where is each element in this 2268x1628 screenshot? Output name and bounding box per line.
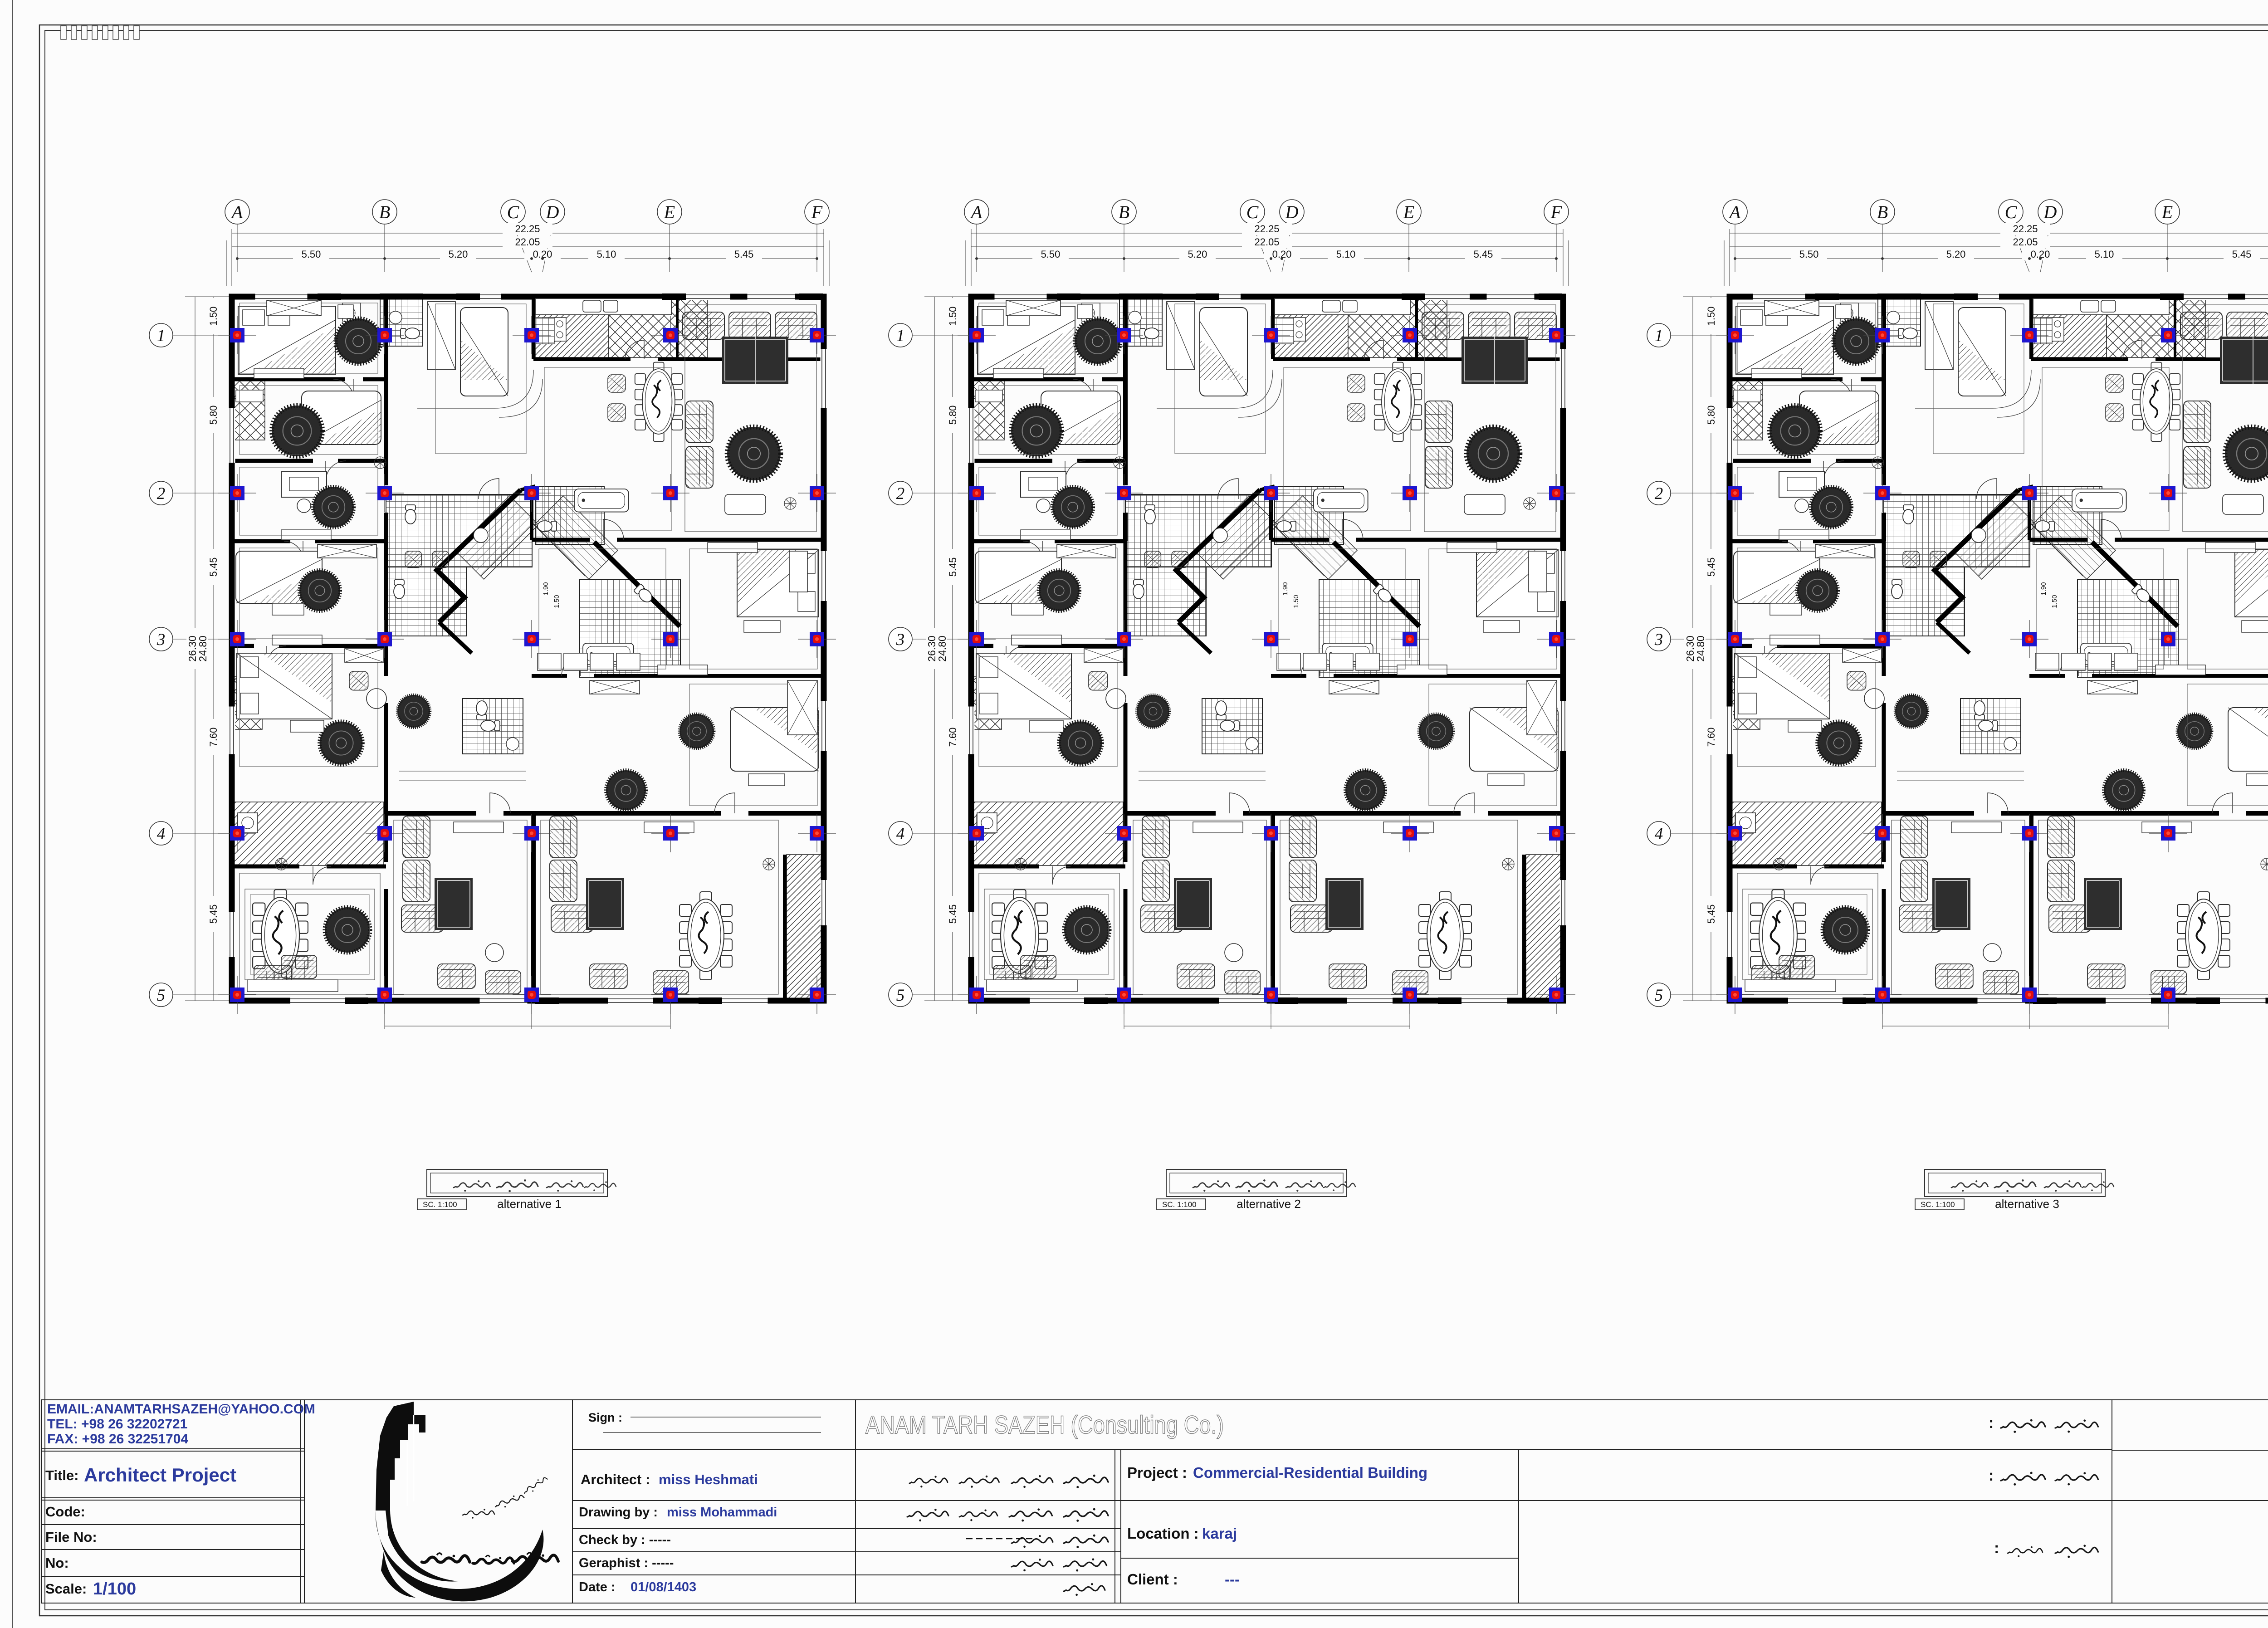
svg-text:EMAIL:ANAMTARHSAZEH@YAHOO.COM: EMAIL:ANAMTARHSAZEH@YAHOO.COM [47,1402,315,1417]
svg-text:miss Heshmati: miss Heshmati [659,1472,758,1487]
svg-text:Date :: Date : [579,1580,616,1594]
svg-text:Client :: Client : [1127,1571,1178,1588]
svg-text::: : [1989,1467,1994,1484]
svg-text:alternative 1: alternative 1 [497,1197,562,1211]
svg-text:Code:: Code: [45,1504,85,1520]
svg-text::: : [1989,1414,1994,1432]
svg-text:No:: No: [45,1555,69,1571]
svg-text:Commercial-Residential Buildin: Commercial-Residential Building [1193,1464,1427,1481]
svg-text:Project :: Project : [1127,1464,1187,1481]
svg-text:File No:: File No: [45,1529,97,1545]
svg-text:alternative 3: alternative 3 [1995,1197,2059,1211]
svg-text:Architect Project: Architect Project [84,1464,236,1486]
svg-text:1/100: 1/100 [93,1579,136,1599]
svg-text:Geraphist : -----: Geraphist : ----- [579,1556,674,1570]
svg-text:karaj: karaj [1202,1525,1237,1542]
svg-text:---: --- [1225,1571,1240,1588]
svg-text::: : [1994,1540,1999,1557]
svg-text:Architect :: Architect : [581,1472,650,1487]
svg-text:Sign :: Sign : [588,1411,622,1424]
svg-text:01/08/1403: 01/08/1403 [631,1580,696,1594]
svg-text:alternative 2: alternative 2 [1237,1197,1301,1211]
svg-text:miss Mohammadi: miss Mohammadi [667,1505,777,1520]
svg-text:TEL: +98 26 32202721: TEL: +98 26 32202721 [47,1417,187,1432]
svg-text:Scale:: Scale: [45,1581,87,1597]
svg-text:Title:: Title: [45,1467,79,1483]
svg-text:Check by : -----: Check by : ----- [579,1533,671,1547]
svg-text:ANAM TARH SAZEH (Consulting Co: ANAM TARH SAZEH (Consulting Co.) [865,1410,1224,1439]
svg-text:FAX: +98 26 32251704: FAX: +98 26 32251704 [47,1432,188,1447]
svg-text:Drawing by :: Drawing by : [579,1505,658,1520]
svg-text:Location :: Location : [1127,1525,1199,1542]
